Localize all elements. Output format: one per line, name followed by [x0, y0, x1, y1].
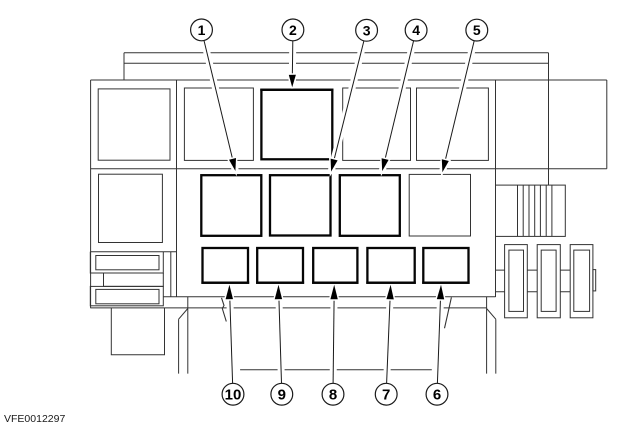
- svg-text:9: 9: [278, 387, 286, 404]
- svg-text:3: 3: [363, 22, 371, 38]
- svg-text:VFE0012297: VFE0012297: [4, 413, 65, 424]
- svg-text:7: 7: [382, 387, 390, 404]
- svg-text:4: 4: [412, 22, 420, 38]
- svg-text:1: 1: [198, 22, 206, 38]
- svg-text:5: 5: [473, 22, 481, 38]
- svg-text:6: 6: [433, 387, 441, 404]
- svg-text:10: 10: [225, 387, 242, 404]
- svg-text:2: 2: [289, 22, 297, 38]
- svg-text:8: 8: [329, 387, 337, 404]
